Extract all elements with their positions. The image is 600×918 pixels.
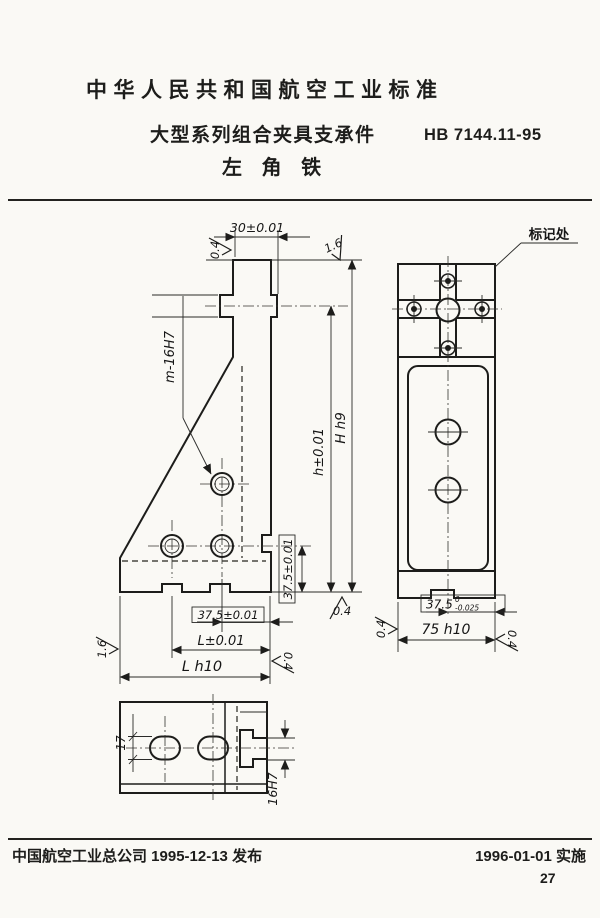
front-view: 标记处 37.5 0 -0.025 75 h10 0.4 0.4	[374, 226, 578, 652]
dim-h: h±0.01	[312, 428, 327, 476]
roughness-mark-right-edge: 0.4	[272, 652, 295, 673]
effective-line: 1996-01-01 实施	[475, 845, 586, 866]
roughness-mark-front-left: 0.4	[374, 617, 397, 638]
svg-text:0.4: 0.4	[281, 652, 295, 670]
standard-document-page: 中华人民共和国航空工业标准 大型系列组合夹具支承件 HB 7144.11-95 …	[0, 0, 600, 918]
holes-label: m-16H7	[163, 330, 178, 383]
bottom-view-outline	[120, 702, 267, 793]
svg-text:0.4: 0.4	[208, 241, 222, 259]
t-slot-profile	[240, 730, 267, 767]
dim-H: H h9	[333, 412, 349, 444]
marking-callout: 标记处	[528, 226, 570, 242]
dim-L: L±0.01	[197, 634, 244, 649]
svg-text:17: 17	[114, 735, 128, 751]
dim-slot-width: 17	[114, 735, 128, 751]
technical-drawing: 30±0.01 0.4 1.6 m-16H7	[0, 0, 600, 918]
side-view: 30±0.01 0.4 1.6 m-16H7	[95, 220, 362, 684]
svg-text:16H7: 16H7	[265, 772, 280, 805]
dim-tslot-width: 16H7	[265, 772, 280, 805]
roughness-mark-top-left: 0.4	[208, 238, 231, 259]
roughness-base-label: 0.4	[333, 604, 351, 618]
svg-text:H h9: H h9	[333, 412, 349, 444]
roughness-mark-left-edge: 1.6	[95, 637, 118, 658]
front-view-outline	[398, 264, 495, 598]
svg-text:-0.025: -0.025	[455, 604, 479, 613]
roughness-mark-top-right: 1.6	[322, 234, 351, 264]
svg-text:m-16H7: m-16H7	[163, 330, 178, 383]
dim-hole-to-base: 37.5±0.01	[279, 535, 295, 603]
dim-slot-spacing: 37.5±0.01	[192, 607, 264, 623]
dim-L-overall: L h10	[182, 659, 222, 675]
svg-text:1.6: 1.6	[95, 640, 109, 658]
svg-text:0.4: 0.4	[505, 630, 519, 648]
svg-text:h±0.01: h±0.01	[312, 428, 327, 476]
bottom-view: 17 16H7	[114, 694, 295, 806]
svg-text:0.4: 0.4	[374, 620, 388, 638]
footer-divider	[8, 838, 592, 840]
dim-width: 75 h10	[422, 622, 471, 638]
page-number: 27	[540, 870, 556, 886]
svg-text:37.5±0.01: 37.5±0.01	[281, 539, 295, 600]
side-view-outline	[120, 260, 277, 592]
dim-top-width: 30±0.01	[230, 220, 284, 235]
issuer-line: 中国航空工业总公司 1995-12-13 发布	[12, 845, 262, 866]
svg-text:37.5: 37.5	[426, 598, 453, 612]
roughness-mark-front-right: 0.4	[496, 630, 519, 651]
svg-text:37.5±0.01: 37.5±0.01	[198, 608, 259, 622]
